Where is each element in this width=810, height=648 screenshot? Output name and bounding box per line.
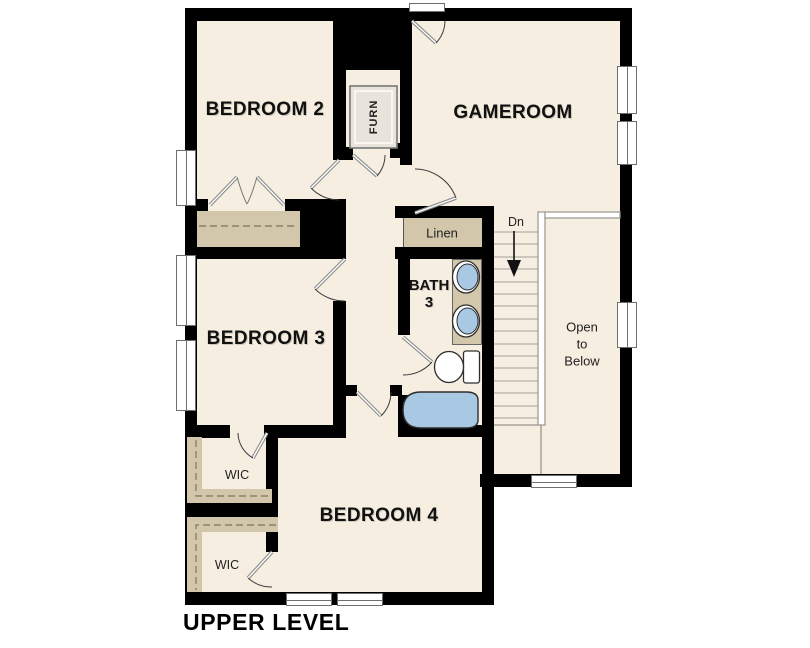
plan-title: UPPER LEVEL [183, 609, 349, 636]
stairs-down-arrow-icon [507, 231, 521, 277]
door-wic-lower [248, 552, 272, 587]
shelf-dash-lines [196, 226, 297, 590]
wic-lower-label: WIC [215, 558, 239, 572]
bedroom2-label: BEDROOM 2 [206, 99, 325, 121]
door-bedroom4 [357, 392, 391, 416]
bathtub-icon [403, 392, 478, 428]
wic-upper-label: WIC [225, 468, 249, 482]
door-gameroom [415, 169, 456, 213]
door-wic-upper [238, 433, 267, 458]
floorplan-canvas: BEDROOM 2 GAMEROOM BEDROOM 3 BEDROOM 4 B… [0, 0, 810, 648]
linen-label: Linen [426, 226, 458, 241]
toilet-icon [435, 351, 480, 383]
staircase [494, 212, 620, 474]
gameroom-label: GAMEROOM [453, 102, 572, 124]
stairs-down-label: Dn [508, 215, 524, 229]
bifold-door-icon [210, 177, 284, 205]
open-to-below-line2: to [564, 337, 599, 354]
bedroom3-label: BEDROOM 3 [207, 328, 326, 350]
door-bedroom2 [311, 160, 339, 200]
sink-icon [453, 305, 480, 337]
bedroom4-label: BEDROOM 4 [320, 505, 439, 527]
bath3-label-line1: BATH [409, 277, 450, 294]
open-to-below-line1: Open [564, 320, 599, 337]
furnace-label: FURN [368, 100, 380, 135]
bath3-label-line2: 3 [409, 294, 450, 311]
door-furnace-closet [353, 155, 385, 176]
open-to-below-line3: Below [564, 353, 599, 370]
door-bedroom3 [315, 259, 345, 301]
bath3-label: BATH 3 [409, 277, 450, 312]
open-to-below-label: Open to Below [564, 320, 599, 371]
door-gameroom-top [412, 21, 445, 43]
sink-icon [453, 261, 480, 293]
plan-symbols [0, 0, 810, 648]
door-bath3 [403, 337, 432, 375]
